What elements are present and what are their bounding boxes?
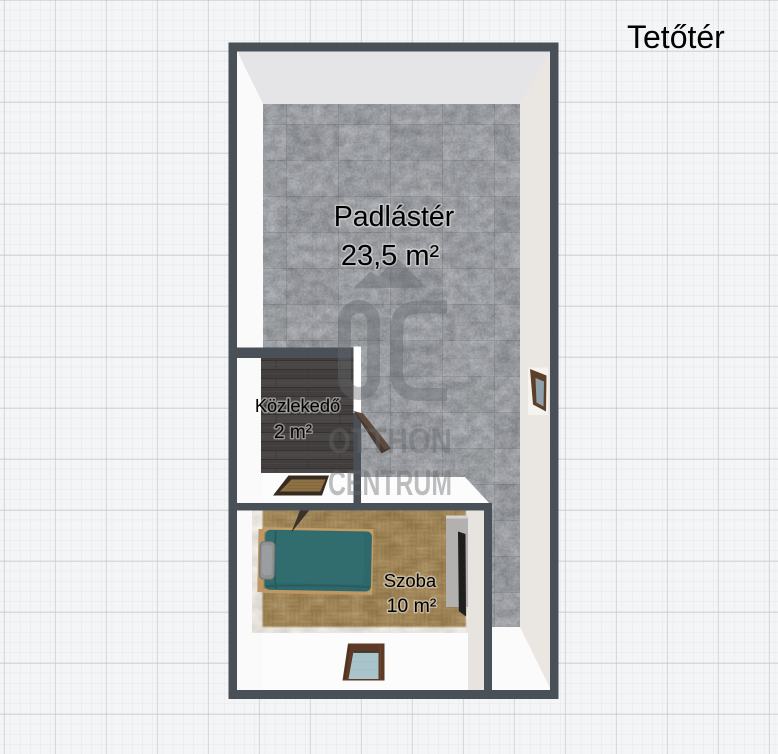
svg-text:Közlekedő: Közlekedő [255, 395, 340, 416]
svg-text:Padlástér: Padlástér [334, 201, 455, 233]
svg-text:OTTHON: OTTHON [328, 422, 452, 461]
svg-text:10 m²: 10 m² [387, 595, 437, 617]
svg-text:2 m²: 2 m² [274, 422, 312, 443]
svg-text:Szoba: Szoba [384, 570, 437, 591]
svg-text:CENTRUM: CENTRUM [328, 464, 452, 503]
svg-text:23,5 m²: 23,5 m² [341, 240, 440, 272]
svg-text:Tetőtér: Tetőtér [627, 19, 725, 55]
